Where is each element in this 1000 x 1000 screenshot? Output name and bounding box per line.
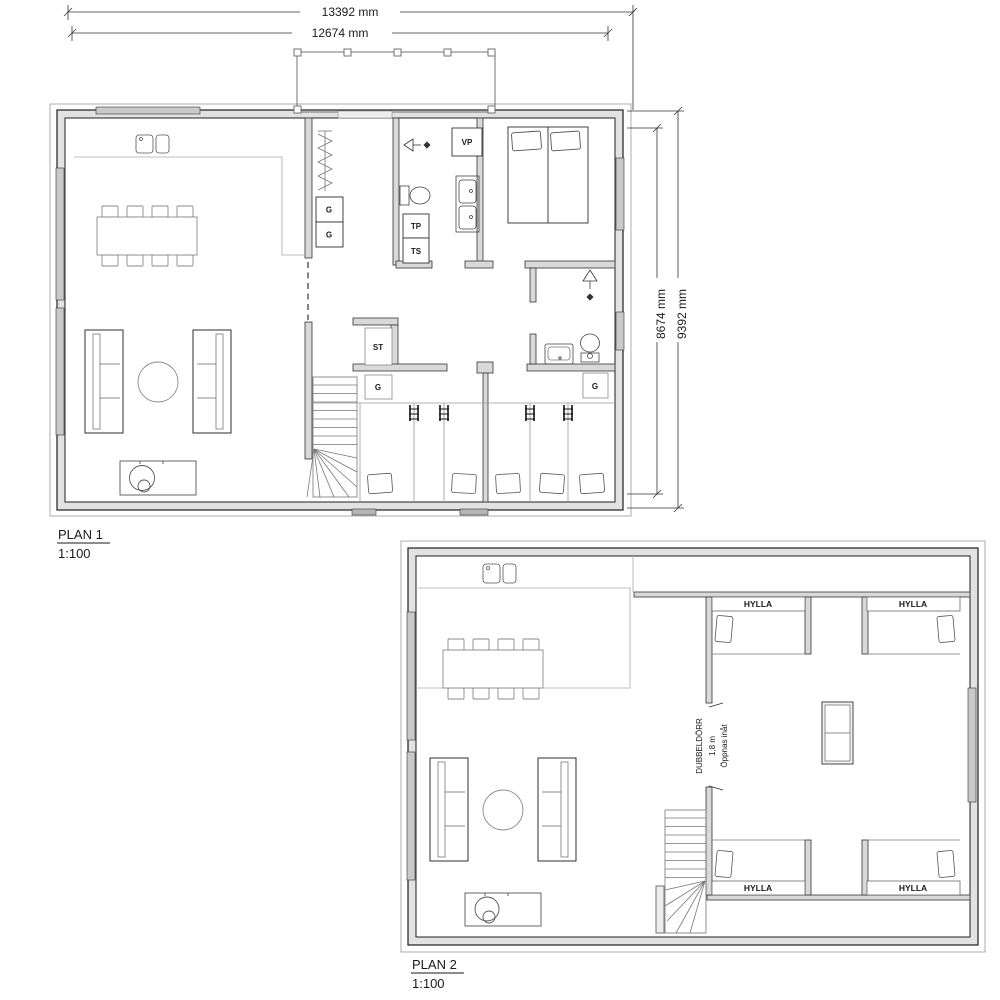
plan1-title: PLAN 1 xyxy=(58,527,103,542)
laundry-tp-label: TP xyxy=(411,222,422,231)
door-note-line2: 1,8 m xyxy=(708,736,717,756)
plan1: G G xyxy=(50,5,689,561)
wardrobe-label: G xyxy=(326,206,332,215)
plan2-scale: 1:100 xyxy=(412,976,445,991)
dim-right-inner: 8674 mm xyxy=(654,289,668,339)
shelf-label: HYLLA xyxy=(899,883,927,893)
plan1-scale: 1:100 xyxy=(58,546,91,561)
shelf-label: HYLLA xyxy=(899,599,927,609)
heat-pump-label: VP xyxy=(462,138,473,147)
shelf-label: HYLLA xyxy=(744,599,772,609)
dim-top-inner: 12674 mm xyxy=(312,26,369,40)
dim-top-outer: 13392 mm xyxy=(322,5,379,19)
dim-right-outer: 9392 mm xyxy=(675,289,689,339)
plan2-title: PLAN 2 xyxy=(412,957,457,972)
wardrobe-label: G xyxy=(592,382,598,391)
plan2-shelf-unit xyxy=(822,702,853,764)
plan2: HYLLA HYLLA HYLLA HYLLA DUBBELDÖRR 1,8 m… xyxy=(401,541,985,991)
door-note-line1: DUBBELDÖRR xyxy=(695,718,704,774)
door-note-line3: Öppnas inåt xyxy=(720,724,729,768)
plan1-hall-wardrobes: G G xyxy=(316,197,343,247)
plan1-entry-threshold xyxy=(338,111,392,118)
plan1-porch xyxy=(294,49,495,113)
laundry-ts-label: TS xyxy=(411,247,422,256)
wardrobe-label: G xyxy=(375,383,381,392)
floor-plan-sheet: G G xyxy=(0,0,1000,1000)
cleaning-closet-label: ST xyxy=(373,343,383,352)
wardrobe-label: G xyxy=(326,231,332,240)
plan1-bedroom xyxy=(508,127,588,223)
shelf-label: HYLLA xyxy=(744,883,772,893)
floor-plan-drawing: G G xyxy=(0,0,1000,1000)
